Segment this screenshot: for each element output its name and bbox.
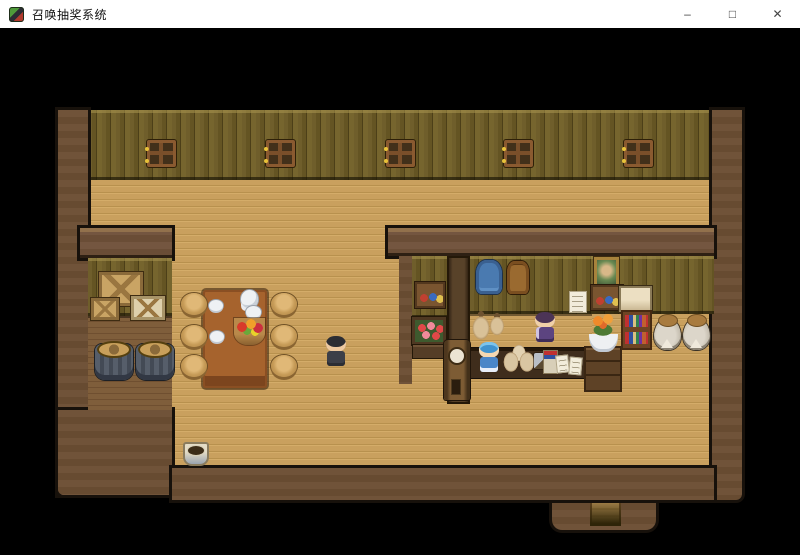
game-viewport[interactable] <box>0 28 800 555</box>
wall-box-shelf <box>415 282 445 308</box>
storage-jar <box>683 318 710 350</box>
bottom-left-wall-border <box>58 410 172 495</box>
pottery-jars <box>471 304 508 346</box>
alcove-wall-cap <box>80 228 172 258</box>
window-title: 召唤抽奖系统 <box>32 6 107 23</box>
flower-box <box>412 317 446 345</box>
bucket <box>183 442 209 466</box>
window-shutter-icon <box>504 140 533 167</box>
fruit-basket <box>234 318 265 345</box>
teacup <box>209 300 223 311</box>
hanging-coat <box>476 260 502 294</box>
storage-jar <box>654 318 681 350</box>
window-shutter-icon <box>266 140 295 167</box>
app-window: 召唤抽奖系统 – □ ✕ <box>0 0 800 555</box>
window-shutter-icon <box>624 140 653 167</box>
grandfather-clock <box>444 340 470 400</box>
grain-sacks <box>503 344 536 376</box>
dresser <box>584 346 622 392</box>
crate-light <box>131 296 165 320</box>
counter-paper <box>568 356 583 375</box>
flower-pot <box>589 314 618 352</box>
teacup <box>210 331 224 342</box>
shop-divider-wall <box>399 256 412 384</box>
maximize-button[interactable]: □ <box>710 0 755 28</box>
npc-shopkeeper[interactable] <box>532 312 558 348</box>
close-button[interactable]: ✕ <box>755 0 800 28</box>
npc-blue-girl[interactable] <box>476 342 502 376</box>
stool <box>181 293 207 315</box>
barrel <box>136 344 174 380</box>
flower-ledge <box>413 345 445 358</box>
counter-box <box>619 286 652 312</box>
crate-small <box>91 298 119 320</box>
window-shutter-icon <box>147 140 176 167</box>
right-wall-border <box>712 110 742 500</box>
stool <box>271 355 297 377</box>
bottom-wall-border <box>172 468 714 500</box>
stool <box>181 355 207 377</box>
rpg-maker-app-icon <box>9 7 24 22</box>
player-character[interactable] <box>323 336 349 372</box>
stool <box>271 293 297 315</box>
teacup <box>246 306 261 318</box>
wall-notice <box>569 291 587 313</box>
barrel <box>95 344 133 380</box>
stool <box>181 325 207 347</box>
window-shutter-icon <box>386 140 415 167</box>
bookshelf <box>621 310 652 350</box>
portrait-painting <box>594 257 619 288</box>
stool <box>271 325 297 347</box>
minimize-button[interactable]: – <box>665 0 710 28</box>
shop-wall-cap <box>388 228 714 256</box>
titlebar: 召唤抽奖系统 – □ ✕ <box>0 0 800 28</box>
window-controls: – □ ✕ <box>665 0 800 28</box>
hanging-vest <box>507 261 529 294</box>
